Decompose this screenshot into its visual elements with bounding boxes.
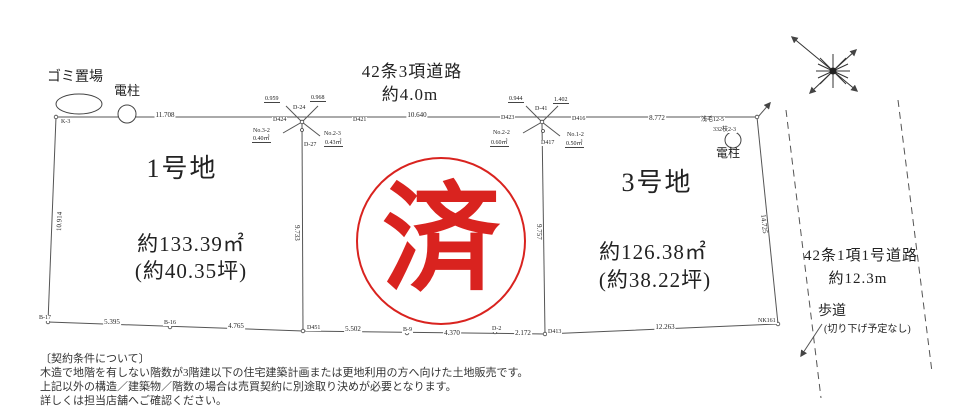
dim-bottom-4: 4.370 — [443, 330, 461, 337]
survey-c2-a2: 0.50㎡ — [565, 141, 584, 148]
lot3-area-tsubo: (約38.22坪) — [599, 269, 711, 291]
survey-c2-p1: D-41 — [534, 106, 548, 112]
dim-top-right: 8.772 — [648, 115, 666, 122]
road-top-name: 42条3項道路 — [362, 63, 463, 81]
garbage-area-label: ゴミ置場 — [47, 71, 103, 86]
survey-c1-n2: No.2-3 — [323, 131, 342, 137]
dim-divider1: 9.733 — [293, 224, 300, 242]
utility-pole-left-label: 電柱 — [114, 84, 140, 98]
sold-stamp-character: 済 — [382, 182, 500, 300]
survey-c2-n1: No.2-2 — [492, 130, 511, 136]
survey-point-d2: D-2 — [491, 326, 502, 332]
survey-point-d451: D451 — [306, 325, 321, 331]
survey-point-d413: D413 — [547, 329, 562, 335]
survey-c1-a1: 0.40㎡ — [252, 136, 271, 143]
survey-c2-m1: 0.944 — [508, 96, 524, 103]
dim-bottom-6: 12.263 — [654, 324, 675, 331]
survey-c1-a2: 0.43㎡ — [324, 140, 343, 147]
survey-c1-p1: D-24 — [292, 105, 306, 111]
sold-stamp: 済 — [356, 157, 526, 325]
survey-c2-a1: 0.60㎡ — [490, 140, 509, 147]
edge-arrow — [758, 103, 770, 117]
contract-notes: 〔契約条件について〕 木造で地階を有しない階数が3階建以下の住宅建築計画または更… — [40, 352, 528, 408]
compass-rose — [792, 37, 857, 93]
contract-notes-line3: 詳しくは担当店舗へご確認ください。 — [40, 394, 528, 408]
survey-c2-p2: D423 — [500, 115, 515, 121]
dim-left-edge: 10.914 — [56, 211, 64, 232]
garbage-area-ellipse — [56, 94, 102, 114]
survey-c1-p4: D-27 — [303, 142, 317, 148]
sidewalk-note: (切り下げ予定なし) — [824, 325, 911, 336]
survey-c1-m1: 0.959 — [264, 96, 280, 103]
survey-c2-p4: D417 — [540, 140, 555, 146]
survey-c1-m2: 0.968 — [310, 95, 326, 102]
survey-c2-m2: 1.402 — [553, 97, 569, 104]
road-right-name: 42条1項1号道路 — [804, 249, 918, 265]
lot1-area-tsubo: (約40.35坪) — [135, 260, 247, 282]
contract-notes-line2: 上記以外の構造／建築物／階数の場合は売買契約に別途取り決めが必要となります。 — [40, 380, 528, 394]
survey-c2-p3: D416 — [571, 116, 586, 122]
dim-right-edge: 14.725 — [759, 213, 769, 235]
sidewalk-label: 歩道 — [818, 305, 846, 320]
lot1-name: 1号地 — [146, 155, 217, 182]
survey-c2-n2: No.1-2 — [566, 132, 585, 138]
survey-point-corner-tl: K-3 — [60, 119, 71, 125]
dim-divider2: 9.757 — [535, 223, 542, 241]
dim-bottom-1: 5.395 — [103, 319, 121, 326]
survey-point-nk161: NK161 — [757, 318, 777, 324]
contract-notes-line1: 木造で地階を有しない階数が3階建以下の住宅建築計画または更地利用の方へ向けた土地… — [40, 366, 528, 380]
survey-c1-p2: D424 — [272, 117, 287, 123]
dim-bottom-3: 5.502 — [344, 326, 362, 333]
dim-top-left: 11.708 — [155, 112, 176, 119]
survey-point-b17: B-17 — [38, 315, 52, 321]
divider-lot1-lot2 — [302, 124, 303, 331]
dim-top-mid: 10.640 — [406, 112, 427, 119]
dim-bottom-2: 4.765 — [227, 323, 245, 330]
lot1-area-m2: 約133.39㎡ — [137, 233, 245, 255]
survey-c1-p3: D421 — [352, 117, 367, 123]
survey-point-b16: B-16 — [163, 320, 177, 326]
lot3-name: 3号地 — [621, 169, 692, 196]
road-right-width: 約12.3m — [829, 272, 888, 288]
pole-id-label-1: 浅毛12-5 — [700, 117, 725, 123]
contract-notes-title: 〔契約条件について〕 — [40, 352, 528, 366]
survey-c1-n1: No.3-2 — [252, 128, 271, 134]
utility-pole-right-label: 電柱 — [716, 147, 740, 160]
survey-point-b9: B-9 — [402, 327, 413, 333]
road-top-width: 約4.0m — [382, 86, 438, 104]
utility-pole-left-circle — [118, 105, 136, 123]
sidewalk-arrow — [801, 324, 822, 356]
land-plot-diagram: ゴミ置場 電柱 電柱 浅毛12-5 332枝2-3 42条3項道路 約4.0m … — [0, 0, 960, 420]
lot3-area-m2: 約126.38㎡ — [599, 241, 707, 263]
compass-north-arrow — [792, 37, 833, 71]
dim-bottom-5: 2.172 — [514, 330, 532, 337]
pole-id-label-2: 332枝2-3 — [712, 127, 737, 133]
